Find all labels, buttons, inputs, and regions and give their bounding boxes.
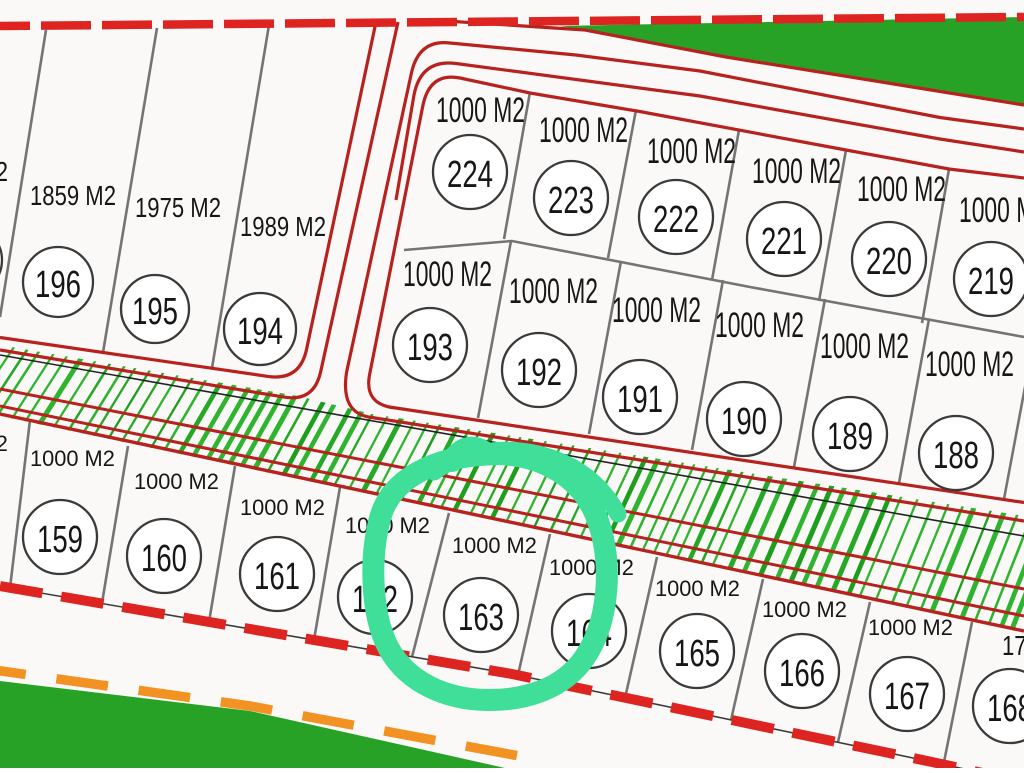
svg-text:1000 M2: 1000 M2 [868,615,953,640]
svg-text:1785 M2: 1785 M2 [1002,630,1024,661]
svg-text:194: 194 [237,310,283,353]
svg-text:1975 M2: 1975 M2 [135,192,221,223]
svg-text:188: 188 [933,434,979,477]
svg-text:220: 220 [866,240,912,283]
svg-text:191: 191 [617,378,663,421]
svg-text:168: 168 [987,687,1024,730]
svg-text:221: 221 [761,220,807,263]
svg-text:1989 M2: 1989 M2 [240,211,326,242]
svg-text:1000 M2: 1000 M2 [134,469,219,494]
svg-text:222: 222 [653,198,699,241]
svg-text:1000 M2: 1000 M2 [612,291,701,330]
svg-text:163: 163 [458,596,504,639]
svg-text:159: 159 [37,518,83,561]
svg-text:224: 224 [447,153,493,196]
svg-text:167: 167 [884,675,930,718]
svg-text:1000 M2: 1000 M2 [655,576,740,601]
svg-text:160: 160 [141,537,187,580]
svg-text:166: 166 [779,652,825,695]
svg-text:223: 223 [548,179,594,222]
svg-text:196: 196 [35,263,81,306]
svg-text:161: 161 [254,555,300,598]
svg-text:1000 M2: 1000 M2 [752,152,841,191]
svg-text:192: 192 [516,351,562,394]
svg-text:1000 M2: 1000 M2 [436,91,525,130]
svg-text:1000 M2: 1000 M2 [240,495,325,520]
svg-text:1000 M2: 1000 M2 [820,327,909,366]
svg-text:1000 M2: 1000 M2 [762,597,847,622]
svg-text:1811 M2: 1811 M2 [0,156,8,187]
svg-text:1000 M2: 1000 M2 [403,255,492,294]
svg-text:1000 M2: 1000 M2 [30,446,115,471]
svg-text:1859 M2: 1859 M2 [30,180,116,211]
svg-text:1000 M2: 1000 M2 [0,431,8,456]
svg-text:1000 M2: 1000 M2 [715,306,804,345]
svg-text:1000 M2: 1000 M2 [647,132,736,171]
svg-text:189: 189 [827,415,873,458]
svg-text:1000 M2: 1000 M2 [509,272,598,311]
svg-text:1000 M2: 1000 M2 [539,111,628,150]
svg-text:1000 M2: 1000 M2 [925,345,1014,384]
svg-text:165: 165 [674,632,720,675]
svg-text:1000 M2: 1000 M2 [959,191,1024,230]
svg-text:1000 M2: 1000 M2 [549,555,634,580]
svg-text:190: 190 [721,400,767,443]
svg-text:1000 M2: 1000 M2 [857,170,946,209]
svg-text:1000 M2: 1000 M2 [452,533,537,558]
svg-text:195: 195 [132,290,178,333]
svg-text:193: 193 [407,326,453,369]
svg-text:219: 219 [968,260,1014,303]
